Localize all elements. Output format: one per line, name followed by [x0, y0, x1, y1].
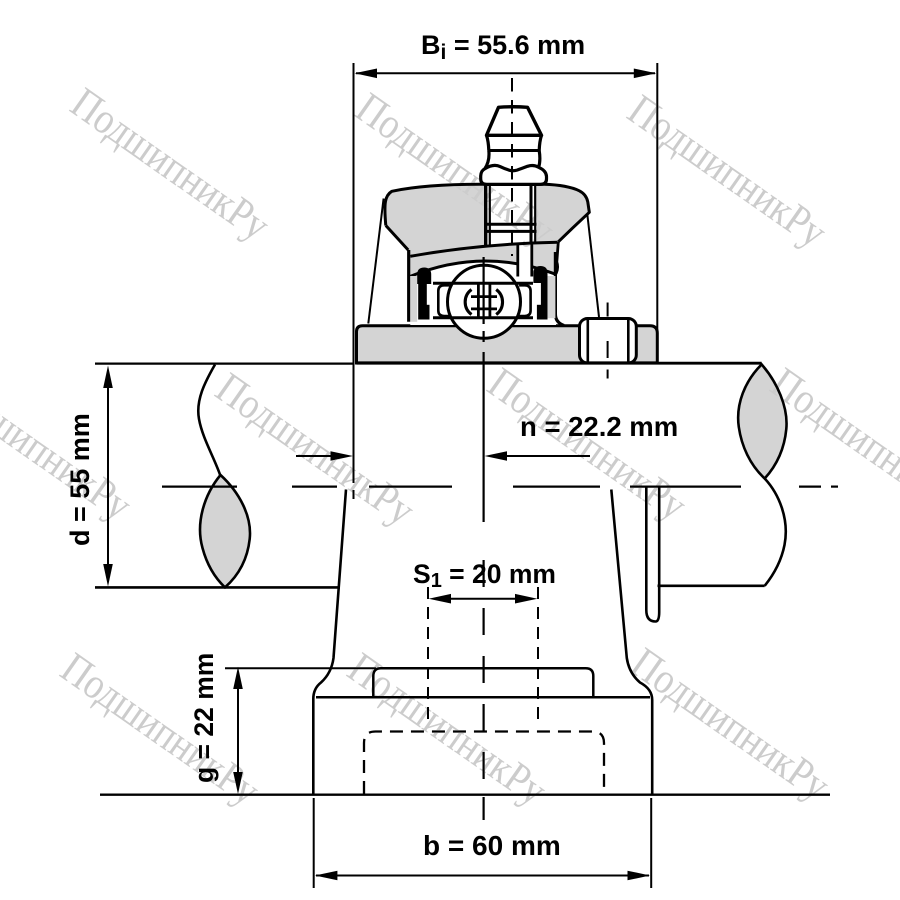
svg-text:b = 60 mm: b = 60 mm [423, 830, 561, 861]
svg-text:Bi = 55.6 mm: Bi = 55.6 mm [421, 30, 585, 64]
